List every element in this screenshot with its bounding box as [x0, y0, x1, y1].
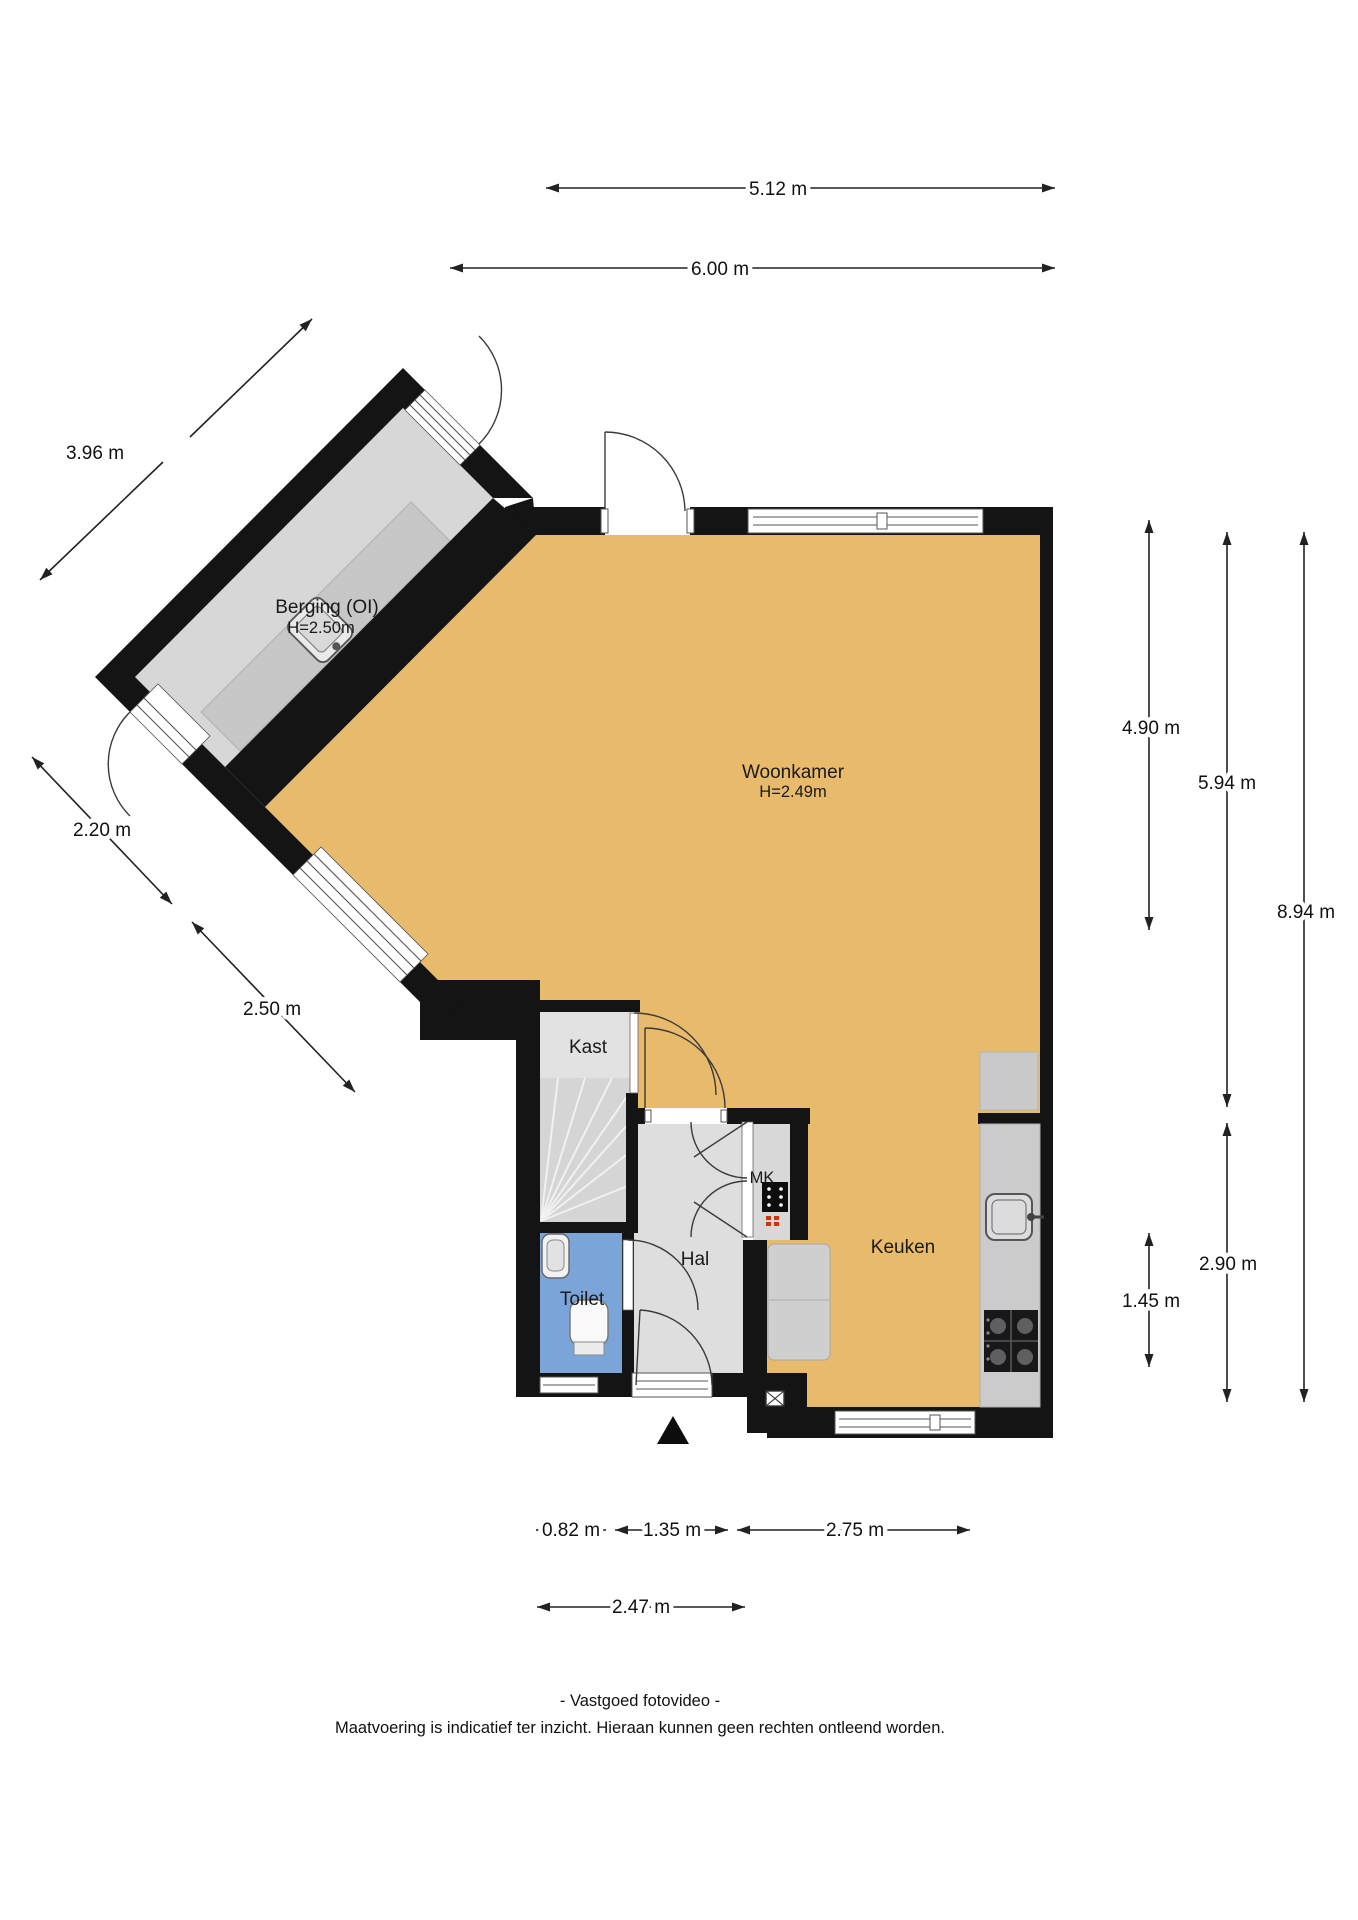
- dim-right-total: 8.94 m: [1277, 902, 1335, 923]
- entrance-arrow-icon: [657, 1416, 689, 1444]
- dim-top-outer: 6.00 m: [691, 259, 749, 280]
- vent-icon: [766, 1391, 784, 1406]
- keuken-label: Keuken: [871, 1237, 935, 1258]
- toilet-label: Toilet: [560, 1289, 605, 1310]
- dim-right-keuken-half: 1.45 m: [1122, 1291, 1180, 1312]
- dim-right-keuken: 2.90 m: [1199, 1254, 1257, 1275]
- dim-top-inner: 5.12 m: [749, 179, 807, 200]
- footer: - Vastgoed fotovideo - Maatvoering is in…: [335, 1692, 945, 1737]
- footer-credit: - Vastgoed fotovideo -: [560, 1692, 720, 1710]
- window-keuken-bottom: [835, 1411, 975, 1434]
- stove-icon: [984, 1310, 1038, 1372]
- mk-label: MK: [750, 1169, 775, 1187]
- kast-label: Kast: [569, 1037, 608, 1058]
- woonkamer-label: Woonkamer: [742, 762, 845, 783]
- sink-icon: [542, 1234, 569, 1278]
- footer-disclaimer: Maatvoering is indicatief ter inzicht. H…: [335, 1719, 945, 1737]
- dim-bottom-toilet: 0.82 m: [542, 1520, 600, 1541]
- woonkamer-height-label: H=2.49m: [759, 783, 826, 801]
- window-toilet-bottom: [540, 1377, 598, 1393]
- dim-right-middle: 5.94 m: [1198, 773, 1256, 794]
- berging-height-label: H=2.50m: [287, 619, 354, 637]
- hal-label: Hal: [681, 1249, 710, 1270]
- door-woonkamer-top: [601, 432, 694, 535]
- cabinet-woonkamer: [980, 1052, 1038, 1110]
- dim-bottom-entrance: 2.47 m: [612, 1597, 670, 1618]
- window-woonkamer-top: [748, 509, 983, 533]
- dim-woonkamer-sw: 2.50 m: [243, 999, 301, 1020]
- dim-berging-nw: 3.96 m: [66, 443, 124, 464]
- dim-bottom-hal: 1.35 m: [643, 1520, 701, 1541]
- dim-berging-sw: 2.20 m: [73, 820, 131, 841]
- berging-label: Berging (OI): [275, 597, 378, 618]
- cabinet-keuken: [768, 1244, 830, 1360]
- stairs-floor: [540, 1078, 630, 1222]
- dim-bottom-keuken: 2.75 m: [826, 1520, 884, 1541]
- floorplan-canvas: Berging (OI) H=2.50m Woonkamer H=2.49m K…: [0, 0, 1358, 1920]
- dim-right-woonkamer: 4.90 m: [1122, 718, 1180, 739]
